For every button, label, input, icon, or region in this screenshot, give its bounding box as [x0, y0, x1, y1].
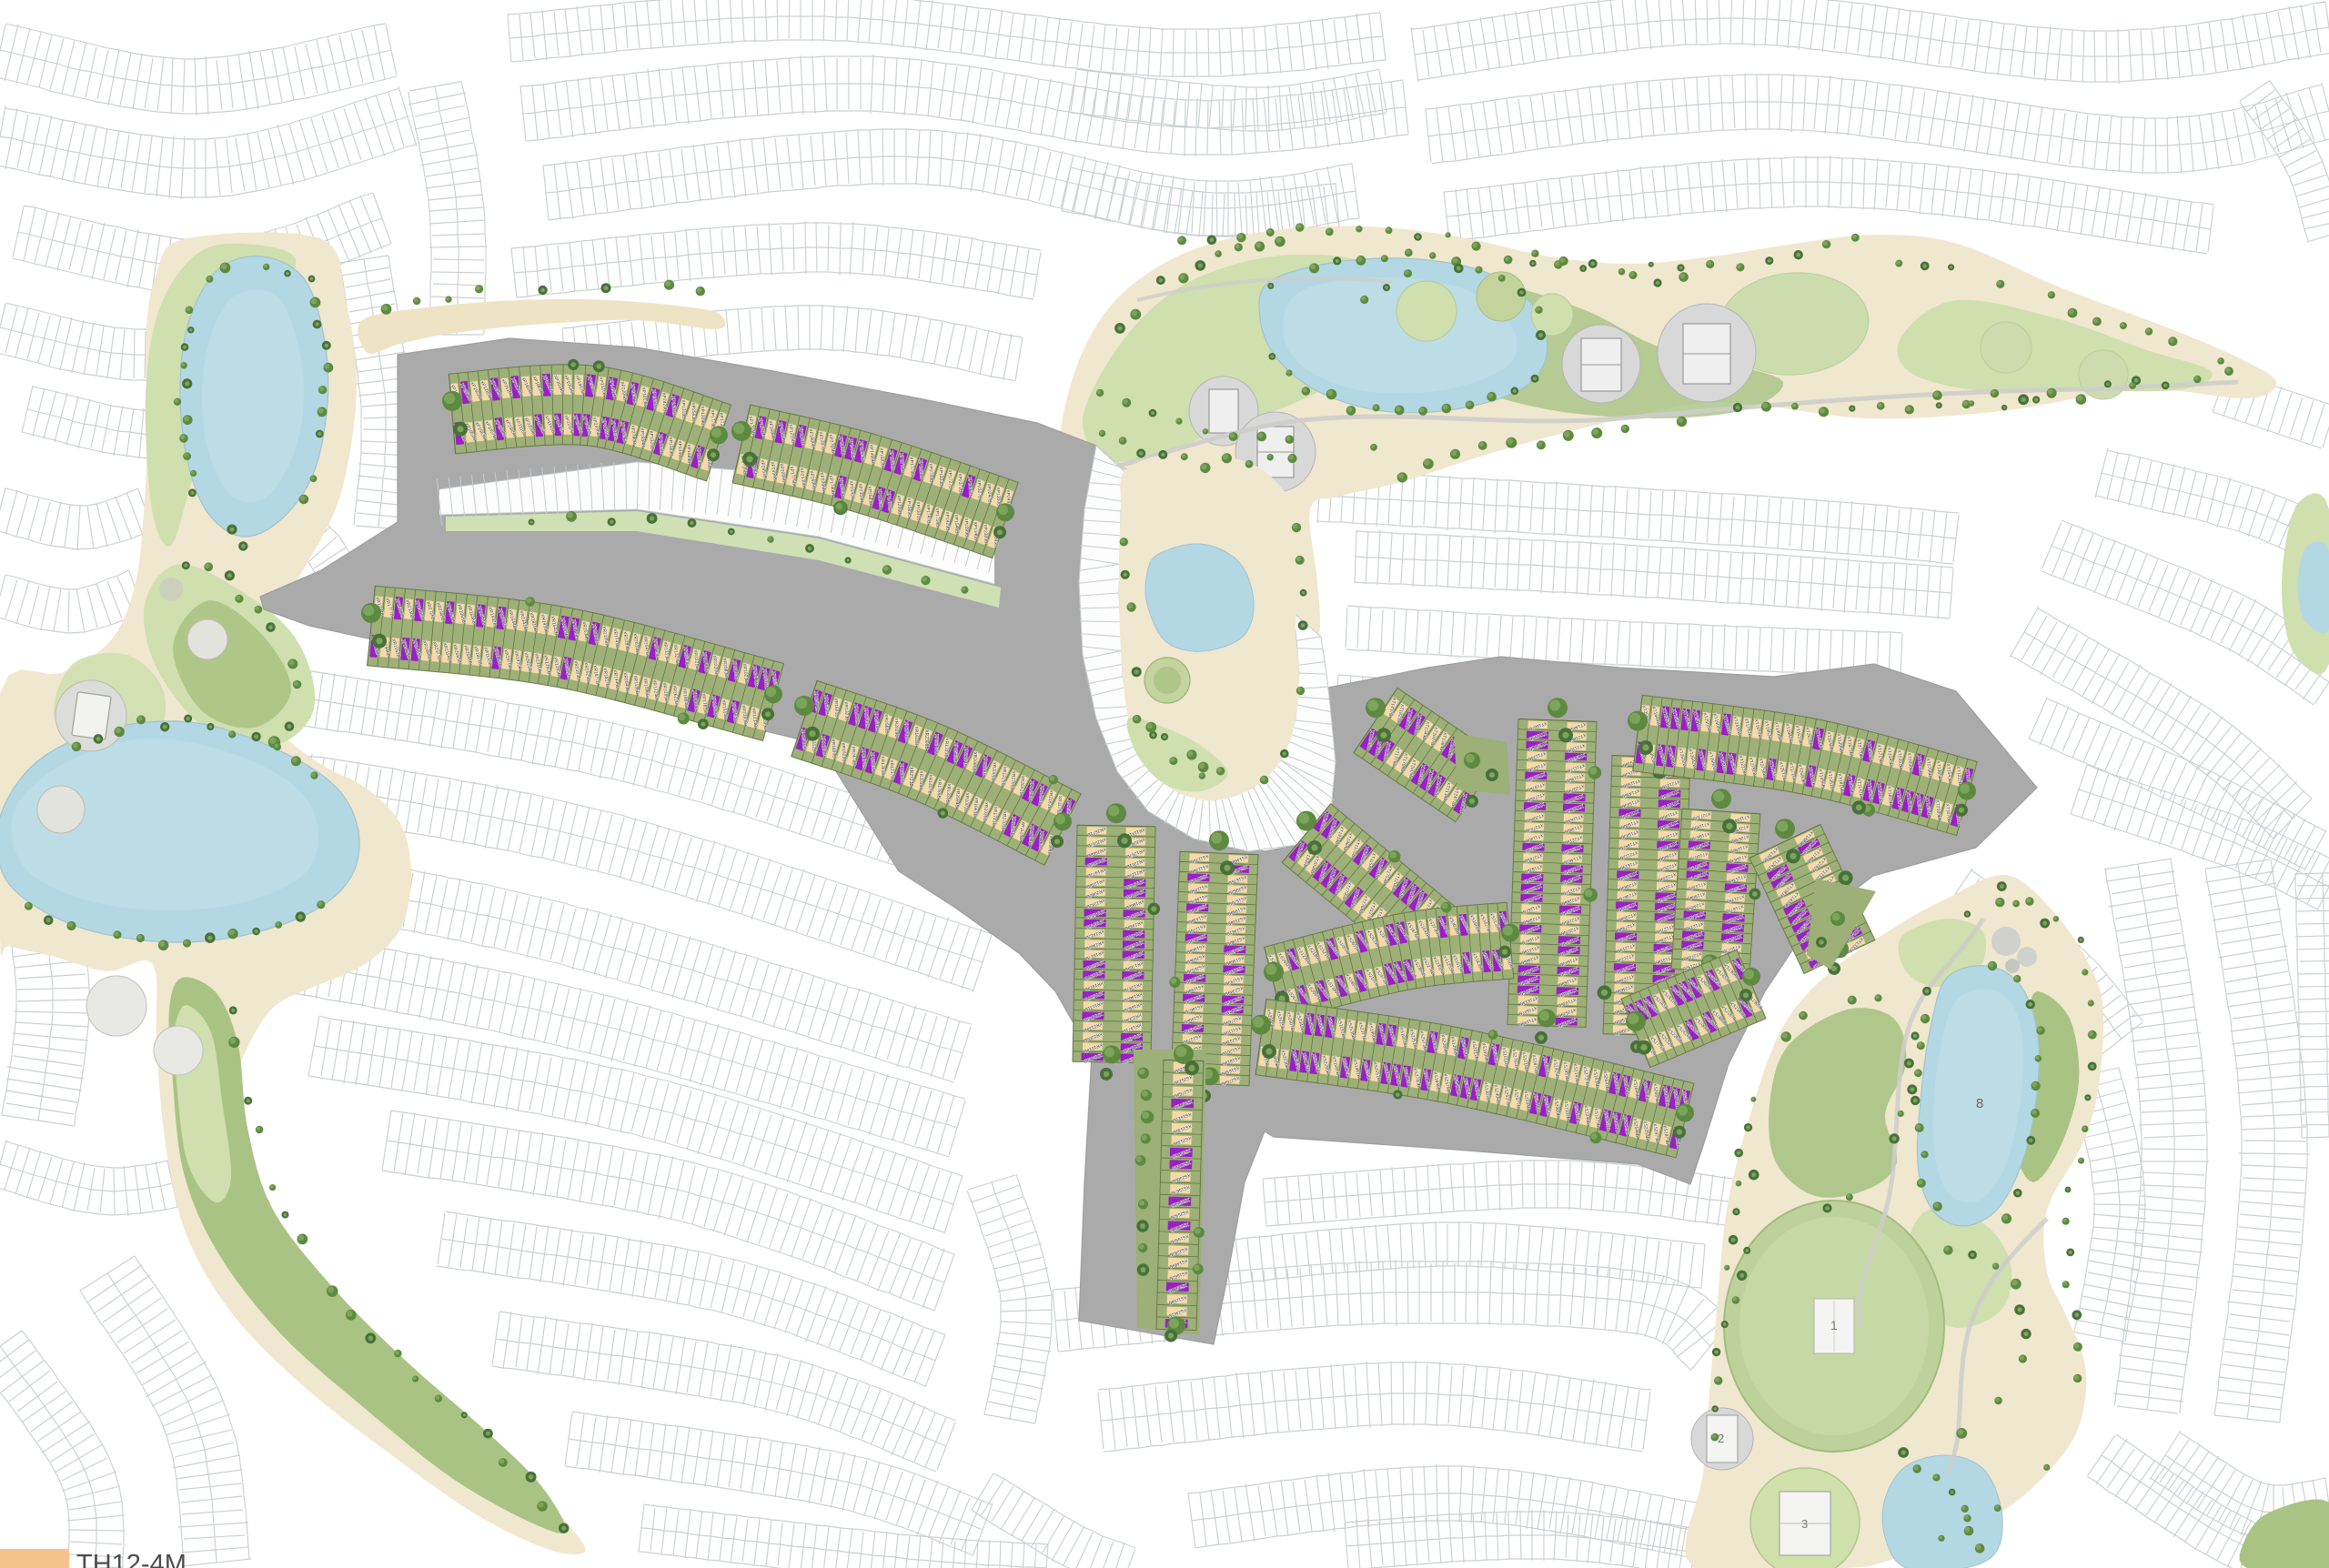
- svg-text:XP2301B: XP2301B: [914, 501, 921, 521]
- svg-text:XR2561B: XR2561B: [952, 742, 958, 762]
- svg-text:XR2478B: XR2478B: [850, 746, 856, 766]
- svg-text:XP1546B: XP1546B: [953, 514, 959, 534]
- svg-text:XP2327B: XP2327B: [975, 479, 982, 499]
- svg-text:XP1758B: XP1758B: [933, 508, 940, 528]
- svg-text:TH12-4M: TH12-4M: [76, 1550, 187, 1568]
- svg-text:XR2473B: XR2473B: [860, 749, 866, 769]
- svg-text:XP1778B: XP1778B: [709, 409, 715, 429]
- svg-text:XR2025B: XR2025B: [869, 752, 875, 772]
- svg-text:XR1313B: XR1313B: [943, 738, 950, 758]
- svg-text:XP1333B: XP1333B: [937, 467, 943, 487]
- svg-text:XR2280B: XR2280B: [899, 763, 904, 783]
- svg-text:XP1350B: XP1350B: [994, 487, 1001, 507]
- svg-text:XR2308B: XR2308B: [923, 729, 929, 749]
- svg-text:XP1569B: XP1569B: [905, 498, 912, 518]
- svg-text:XP2372B: XP2372B: [956, 473, 963, 493]
- svg-text:XP2437B: XP2437B: [966, 477, 973, 497]
- svg-text:XR2723B: XR2723B: [908, 767, 913, 787]
- svg-text:XR1407B: XR1407B: [927, 774, 933, 794]
- svg-text:XP1569B: XP1569B: [667, 437, 673, 457]
- svg-text:XP1209B: XP1209B: [700, 406, 706, 426]
- svg-text:XP2708B: XP2708B: [927, 463, 933, 483]
- svg-text:XP1429B: XP1429B: [943, 511, 950, 531]
- svg-text:XP1146B: XP1146B: [972, 521, 978, 541]
- svg-text:XP1440B: XP1440B: [677, 440, 683, 460]
- svg-text:XP1727B: XP1727B: [946, 469, 953, 489]
- svg-text:XP1189B: XP1189B: [695, 447, 701, 467]
- svg-text:XR2247B: XR2247B: [933, 734, 939, 754]
- svg-text:XP1318B: XP1318B: [680, 399, 686, 419]
- svg-text:XR1611B: XR1611B: [913, 726, 919, 746]
- svg-text:XP2563B: XP2563B: [691, 402, 697, 422]
- svg-text:XR2039B: XR2039B: [918, 770, 923, 790]
- svg-text:3: 3: [1801, 1517, 1808, 1531]
- svg-text:XR1765B: XR1765B: [935, 779, 942, 799]
- svg-text:XR2560B: XR2560B: [882, 714, 889, 734]
- svg-text:XR2782B: XR2782B: [903, 721, 910, 741]
- svg-text:XP1696B: XP1696B: [670, 396, 676, 416]
- svg-text:XP2399B: XP2399B: [963, 518, 969, 538]
- svg-text:8: 8: [1976, 1096, 1983, 1111]
- svg-text:XR1539B: XR1539B: [872, 711, 879, 731]
- svg-text:XR2039B: XR2039B: [893, 718, 900, 738]
- svg-text:XP1747B: XP1747B: [924, 504, 931, 524]
- svg-text:XP2300B: XP2300B: [982, 524, 988, 544]
- svg-text:XR1365B: XR1365B: [880, 756, 886, 776]
- svg-text:1: 1: [1830, 1318, 1838, 1332]
- svg-text:XP1865B: XP1865B: [657, 434, 663, 454]
- svg-text:XR2793B: XR2793B: [862, 708, 869, 728]
- svg-text:XP2247B: XP2247B: [985, 483, 992, 503]
- svg-text:XP1928B: XP1928B: [917, 459, 923, 479]
- svg-text:XR1217B: XR1217B: [889, 759, 895, 779]
- svg-text:XP1689B: XP1689B: [686, 444, 692, 464]
